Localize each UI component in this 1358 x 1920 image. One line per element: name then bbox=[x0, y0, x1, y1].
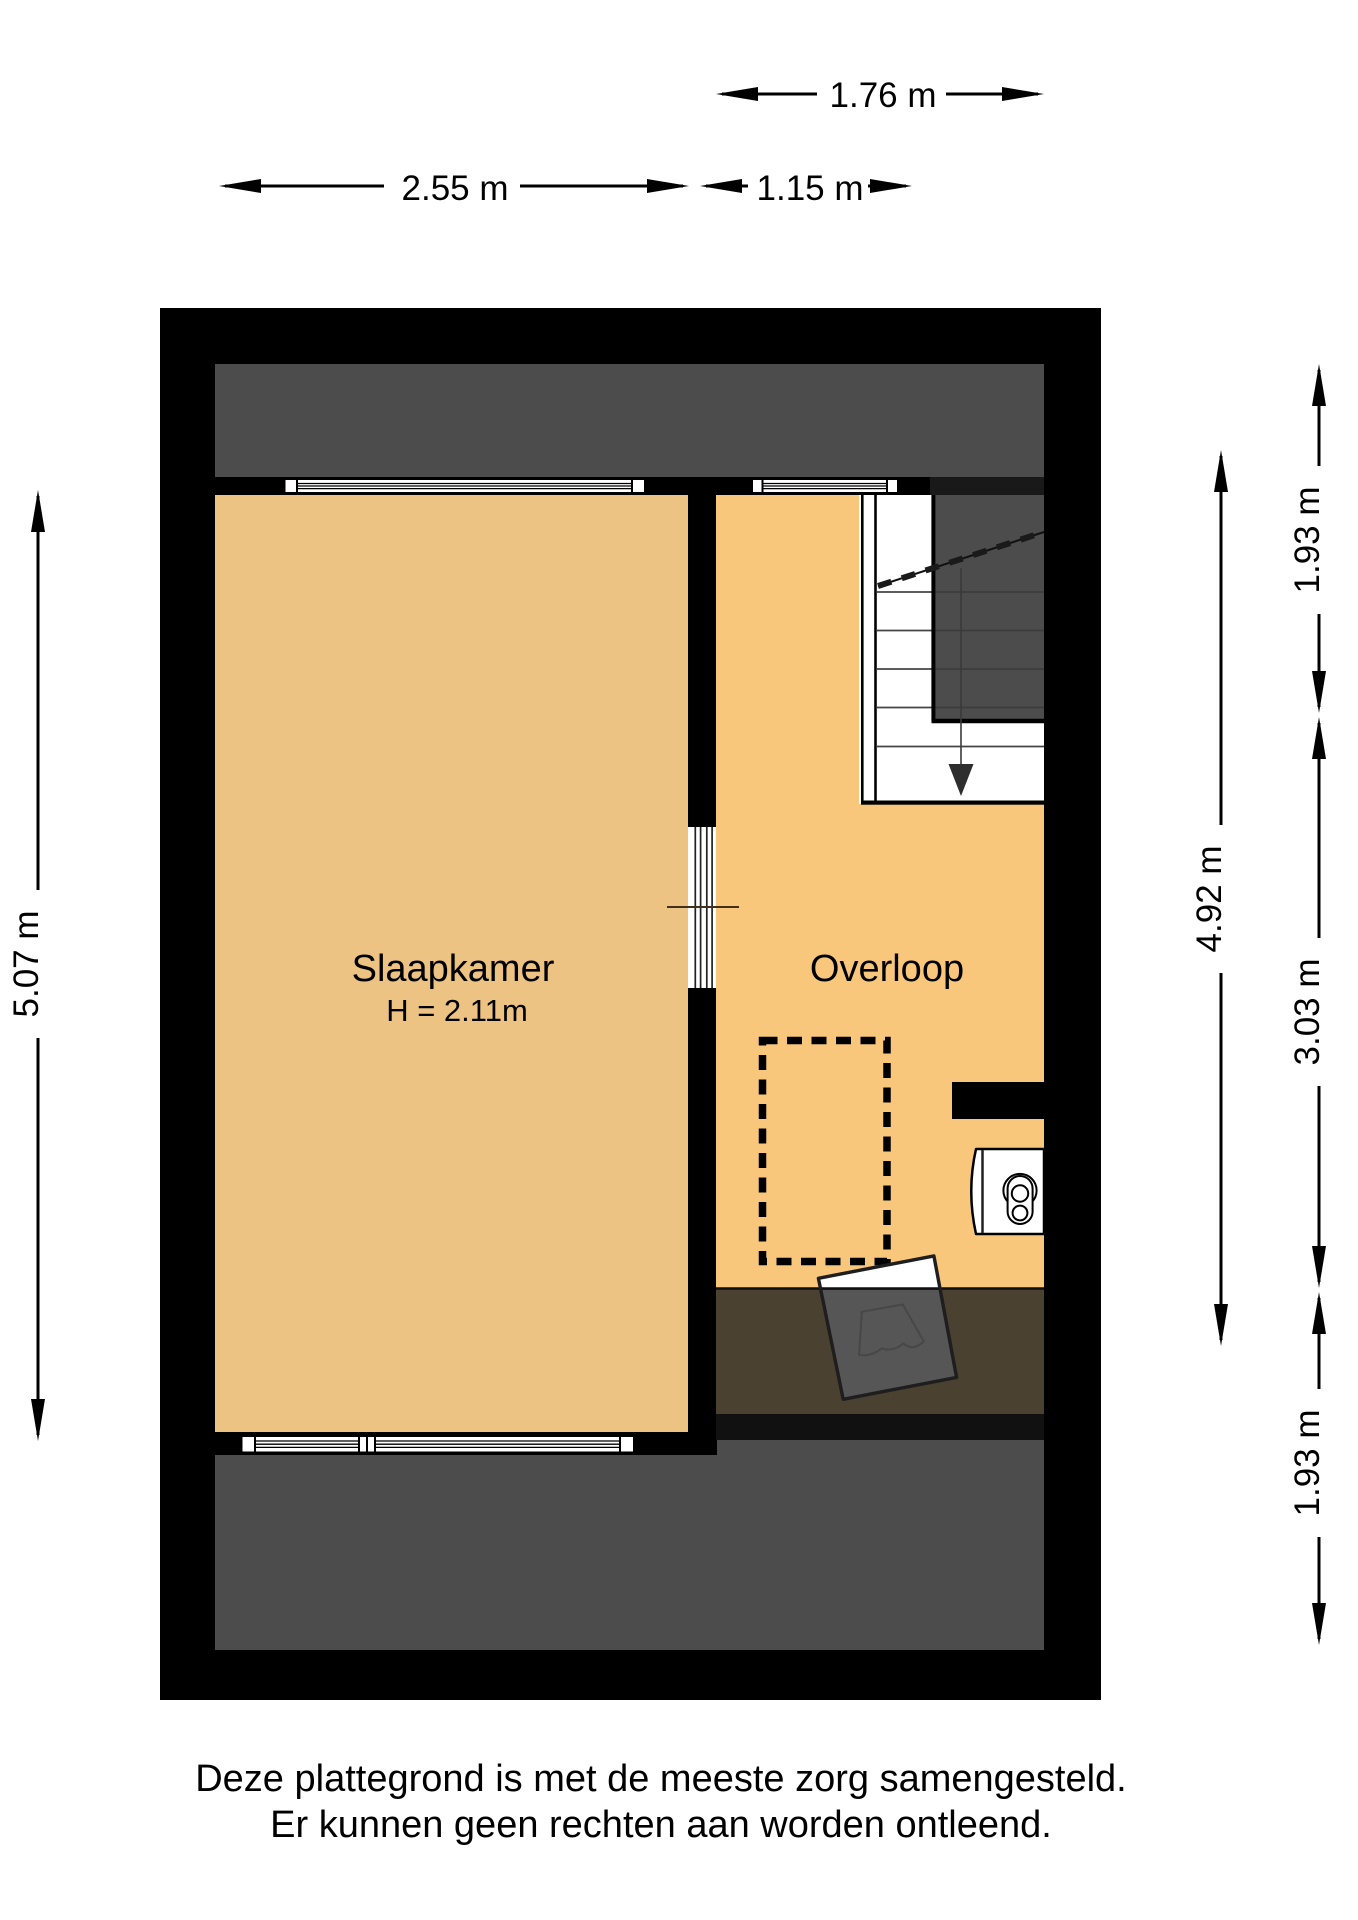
svg-text:Deze plattegrond is met de mee: Deze plattegrond is met de meeste zorg s… bbox=[195, 1758, 1127, 1800]
svg-text:Overloop: Overloop bbox=[810, 948, 964, 990]
svg-text:4.92 m: 4.92 m bbox=[1190, 846, 1229, 953]
svg-text:1.93 m: 1.93 m bbox=[1288, 487, 1327, 594]
svg-text:5.07 m: 5.07 m bbox=[7, 911, 46, 1018]
svg-text:Slaapkamer: Slaapkamer bbox=[352, 948, 555, 990]
svg-text:3.03 m: 3.03 m bbox=[1288, 959, 1327, 1066]
svg-text:1.76 m: 1.76 m bbox=[830, 76, 937, 115]
svg-text:2.55 m: 2.55 m bbox=[402, 169, 509, 208]
svg-text:1.15 m: 1.15 m bbox=[757, 169, 864, 208]
svg-text:1.93 m: 1.93 m bbox=[1288, 1410, 1327, 1517]
svg-text:Er kunnen geen rechten aan wor: Er kunnen geen rechten aan worden ontlee… bbox=[270, 1804, 1052, 1846]
svg-text:H = 2.11m: H = 2.11m bbox=[386, 993, 528, 1028]
